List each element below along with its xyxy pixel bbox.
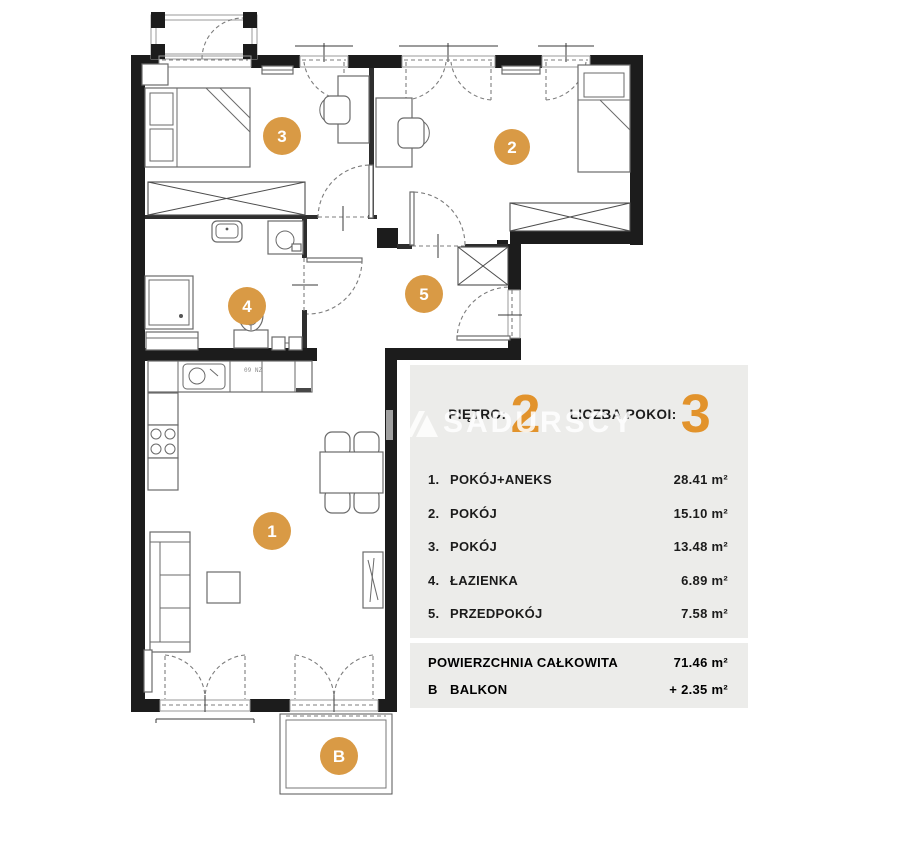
summary-row: B BALKON + 2.35 m² [410,676,748,703]
door-bathroom [292,258,362,314]
kitchen-counter-icon [148,361,312,392]
door-room3 [318,165,373,231]
room-list: 1. POKÓJ+ANEKS 28.41 m² 2. POKÓJ 15.10 m… [410,463,748,631]
stove-icon [148,393,178,490]
coffee-table-icon [207,572,240,603]
summary-panel: POWIERZCHNIA CAŁKOWITA 71.46 m² B BALKON… [410,643,748,708]
sink-icon [212,221,242,242]
room-row: 3. POKÓJ 13.48 m² [410,530,748,564]
svg-text:2: 2 [507,138,516,157]
bath-shelf-icon [146,332,198,350]
room-row: 5. PRZEDPOKÓJ 7.58 m² [410,597,748,631]
desk-room2-icon [376,98,429,167]
bed-double-icon [145,88,250,167]
radiator-icon [502,66,540,74]
room-marker-3: 3 [263,117,301,155]
wardrobe-room3-icon [148,182,305,215]
bed-single-icon [578,65,630,172]
rooms-count-label: LICZBA POKOI: [570,407,677,422]
floor-value: 2 [510,390,539,439]
svg-text:4: 4 [242,297,252,316]
floor-label: PIĘTRO: [448,407,506,422]
room-marker-5: 5 [405,275,443,313]
loggia-door [151,12,257,67]
info-panel: PIĘTRO: 2 LICZBA POKOI: 3 1. POKÓJ+ANEKS… [410,365,748,638]
panel-header: PIĘTRO: 2 LICZBA POKOI: 3 [410,365,748,463]
french-window-left [156,655,254,723]
floor-group: PIĘTRO: 2 [448,390,539,439]
room-row: 2. POKÓJ 15.10 m² [410,497,748,531]
washing-machine-icon [268,221,303,254]
sofa-icon [150,532,190,652]
svg-text:1: 1 [267,522,276,541]
balcony-marker: B [320,737,358,775]
room-row: 1. POKÓJ+ANEKS 28.41 m² [410,463,748,497]
dining-set-icon [320,432,383,513]
svg-text:B: B [333,747,345,766]
desk-room3-icon [320,76,369,143]
wall-vent [386,410,393,440]
wardrobe-hall-icon [458,247,508,285]
svg-text:5: 5 [419,285,428,304]
summary-row: POWIERZCHNIA CAŁKOWITA 71.46 m² [410,649,748,676]
door-room2 [410,192,465,258]
svg-text:3: 3 [277,127,286,146]
room-marker-4: 4 [228,287,266,325]
radiator-icon [144,650,152,692]
radiator-icon [262,66,293,74]
room-row: 4. ŁAZIENKA 6.89 m² [410,564,748,598]
kitchen-label: 09 NZ [244,367,262,374]
nightstand-icon [142,64,168,85]
rooms-count-value: 3 [681,390,710,439]
tv-unit-icon [363,552,383,608]
rooms-count-group: LICZBA POKOI: 3 [570,390,710,439]
door-entrance [457,287,522,340]
wardrobe-room2-icon [510,203,630,231]
shower-icon [145,276,193,329]
room-marker-2: 2 [494,129,530,165]
window-room2-double [399,43,498,100]
french-window-balcony [290,655,378,712]
room-marker-1: 1 [253,512,291,550]
